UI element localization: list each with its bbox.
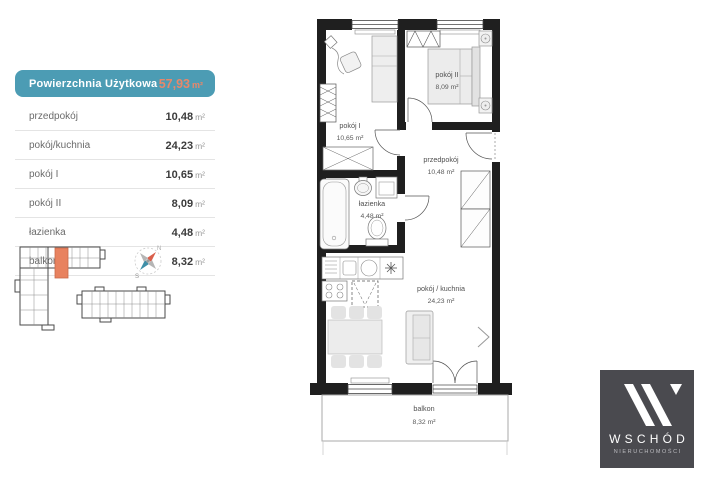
bed-single: [372, 36, 397, 102]
shelf-zigzag: [407, 31, 440, 47]
sink: [355, 177, 372, 196]
building-overview-map: N S: [8, 238, 228, 333]
washing-machine: [376, 177, 397, 198]
row-value: 10,65m²: [166, 165, 205, 183]
room-label-lazienka: łazienka: [359, 199, 385, 208]
chair: [339, 51, 362, 74]
row-label: łazienka: [29, 227, 66, 238]
logo-tagline: NIERUCHOMOŚCI: [600, 449, 694, 455]
balcony-door: [433, 361, 477, 393]
compass-center-dot: [146, 259, 150, 263]
building-b-rooms: [82, 291, 165, 318]
nightstand-top: [479, 31, 492, 46]
headboard: [472, 47, 480, 106]
sofa: [406, 311, 433, 364]
compass: N S: [135, 246, 161, 280]
row-label: pokój I: [29, 169, 58, 180]
wardrobe-x: [323, 147, 373, 170]
furniture-lazienka: [320, 177, 397, 249]
window-pokoj-ii: [437, 21, 483, 35]
row-value: 24,23m²: [166, 136, 205, 154]
room-area-kuchnia: 24,23 m²: [428, 298, 456, 305]
room-area-pokoj-ii: 8,09 m²: [435, 84, 459, 91]
room-label-kuchnia: pokój / kuchnia: [417, 284, 465, 293]
hall-wardrobe: [461, 171, 490, 247]
table-row: przedpokój 10,48m²: [15, 102, 215, 131]
row-label: pokój/kuchnia: [29, 140, 90, 151]
room-area-lazienka: 4,48 m²: [360, 213, 384, 220]
door-pokoj-i: [375, 130, 400, 155]
row-value: 8,09m²: [172, 194, 205, 212]
fridge-dashed: [352, 281, 378, 307]
room-area-balkon: 8,32 m²: [412, 419, 436, 426]
area-header-label: Powierzchnia Użytkowa: [29, 78, 157, 90]
kitchen-counter: [322, 257, 403, 279]
logo-w-icon: [600, 376, 694, 430]
radiator-chevron: [478, 327, 489, 347]
floorplan-page: Powierzchnia Użytkowa 57,93m² przedpokój…: [0, 0, 710, 481]
toilet: [366, 217, 388, 246]
room-area-pokoj-i: 10,65 m²: [337, 135, 365, 142]
furniture-przedpokoj: [461, 171, 490, 247]
highlighted-unit: [55, 248, 68, 278]
room-area-przedpokoj: 10,48 m²: [428, 169, 456, 176]
bathtub: [320, 179, 349, 249]
compass-south-label: S: [135, 274, 139, 280]
room-label-pokoj-ii: pokój II: [435, 70, 458, 79]
row-label: przedpokój: [29, 111, 78, 122]
window-kuchnia: [348, 378, 392, 394]
furniture-pokoj-i: [320, 36, 397, 170]
floor-plan: pokój I 10,65 m² pokój II 8,09 m² przedp…: [300, 0, 520, 475]
row-value: 10,48m²: [166, 107, 205, 125]
table-row: pokój II 8,09m²: [15, 189, 215, 218]
room-label-przedpokoj: przedpokój: [423, 155, 459, 164]
table-row: pokój I 10,65m²: [15, 160, 215, 189]
entrance-door: [466, 133, 495, 159]
stove: [322, 281, 347, 301]
logo-name: WSCHÓD: [600, 432, 694, 446]
agency-logo: WSCHÓD NIERUCHOMOŚCI: [600, 370, 694, 468]
table-row: pokój/kuchnia 24,23m²: [15, 131, 215, 160]
desk: [324, 36, 337, 49]
room-label-pokoj-i: pokój I: [339, 121, 360, 130]
door-lazienka: [405, 196, 429, 220]
dining-table: [328, 306, 382, 368]
shelf-hatched: [320, 84, 336, 122]
area-table-header: Powierzchnia Użytkowa 57,93m²: [15, 70, 215, 97]
row-label: pokój II: [29, 198, 61, 209]
compass-north-label: N: [157, 246, 161, 252]
window-pokoj-i: [352, 21, 398, 35]
furniture-kuchnia: [322, 257, 489, 368]
total-area-value: 57,93m²: [159, 75, 203, 93]
room-label-balkon: balkon: [413, 404, 434, 413]
nightstand-bottom: [479, 98, 492, 113]
